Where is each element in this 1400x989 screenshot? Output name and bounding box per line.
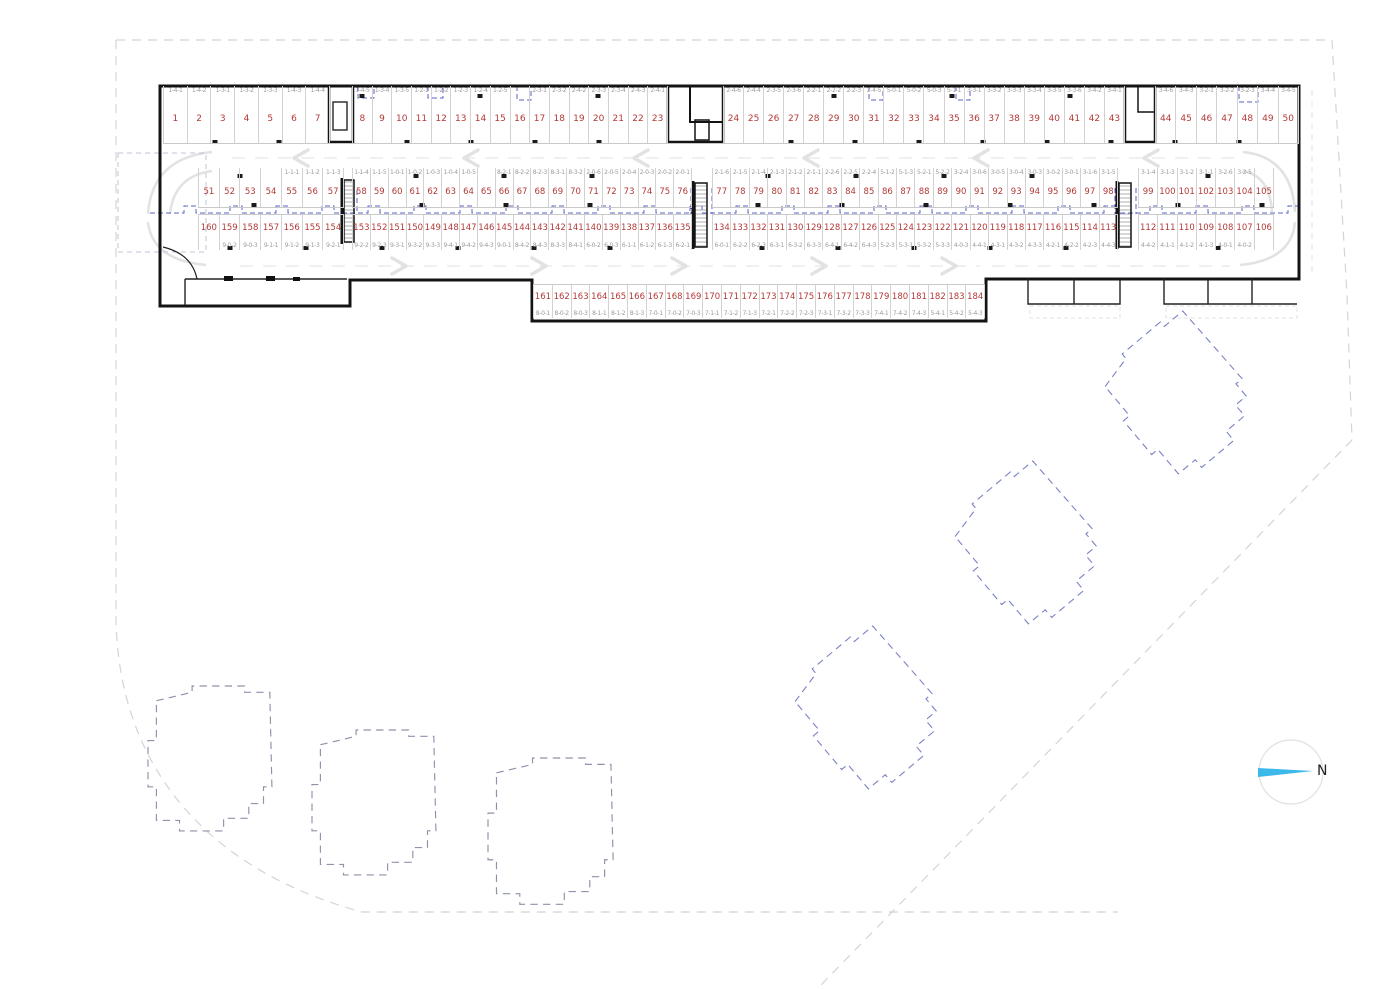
space-label: 8-0-3 [573, 309, 587, 318]
space-label: 2-1-5 [733, 168, 747, 177]
space-number: 20 [593, 114, 604, 124]
space-number: 76 [677, 187, 688, 197]
space-label: 6-1-1 [622, 241, 636, 250]
parking-space: 1797-4-1 [872, 285, 891, 318]
space-number: 39 [1029, 114, 1040, 124]
parking-space: 2-2-229 [824, 86, 844, 143]
parking-space: 3-0-493 [1008, 168, 1026, 207]
space-number: 107 [1236, 223, 1252, 233]
parking-space: 3-2-6103 [1216, 168, 1235, 207]
space-number: 13 [455, 114, 466, 124]
space-label: 3-1-6 [1083, 168, 1097, 177]
parking-space: 1326-2-3 [750, 215, 768, 250]
space-number: 31 [868, 114, 879, 124]
parking-space: 1316-3-1 [768, 215, 786, 250]
space-number: 69 [552, 187, 563, 197]
space-label: 6-3-2 [788, 241, 802, 250]
parking-space: 3-4-345 [1176, 86, 1196, 143]
parking-space: 3-0-196 [1063, 168, 1081, 207]
space-label: 8-4-1 [568, 241, 582, 250]
space-number: 56 [307, 187, 318, 197]
space-number: 131 [769, 223, 785, 233]
parking-space: 1549-2-1 [323, 215, 344, 250]
space-number: 14 [475, 114, 486, 124]
parking-space: 1-0-160 [389, 168, 407, 207]
space-number: 166 [629, 292, 645, 302]
space-number: 3 [220, 114, 226, 124]
space-label: 6-2-3 [751, 241, 765, 250]
parking-space: 3-3-237 [985, 86, 1005, 143]
space-number: 88 [919, 187, 930, 197]
space-number: 63 [445, 187, 456, 197]
space-number: 137 [639, 223, 655, 233]
space-number: 5 [267, 114, 273, 124]
parking-space: 3-1-598 [1100, 168, 1118, 207]
space-number: 19 [573, 114, 584, 124]
space-number: 117 [1026, 223, 1042, 233]
parking-space: 3-4-550 [1279, 86, 1299, 143]
space-label: 5-2-2 [935, 168, 949, 177]
parking-space: 1-1-357 [323, 168, 344, 207]
parking-space: 5-1-387 [897, 168, 915, 207]
space-number: 101 [1179, 187, 1195, 197]
space-label: 1-3-1 [216, 86, 230, 95]
space-number: 142 [550, 223, 566, 233]
space-label: 2-4-5 [867, 86, 881, 95]
space-number: 53 [245, 187, 256, 197]
parking-space: 1559-1-3 [303, 215, 324, 250]
parking-space: 53 [240, 168, 261, 207]
parking-space: 1489-4-1 [442, 215, 460, 250]
space-number: 148 [443, 223, 459, 233]
space-label: 7-3-2 [837, 309, 851, 318]
space-number: 72 [606, 187, 617, 197]
parking-space: 2-3-320 [589, 86, 609, 143]
space-label: 3-0-5 [991, 168, 1005, 177]
parking-space: 16 [511, 86, 531, 143]
parking-space: 1366-1-3 [656, 215, 674, 250]
parking-space: 2-2-485 [860, 168, 878, 207]
parking-space: 1-1-256 [303, 168, 324, 207]
space-label: 6-1-3 [658, 241, 672, 250]
space-number: 147 [460, 223, 476, 233]
space-number: 182 [930, 292, 946, 302]
space-label: 7-3-1 [818, 309, 832, 318]
space-number: 68 [534, 187, 545, 197]
space-number: 18 [553, 114, 564, 124]
parking-space: 1519-3-1 [389, 215, 407, 250]
space-number: 89 [937, 187, 948, 197]
space-number: 174 [779, 292, 795, 302]
space-number: 38 [1008, 114, 1019, 124]
space-label: 1-4-2 [192, 86, 206, 95]
space-number: 92 [992, 187, 1003, 197]
space-label: 3-3-1 [967, 86, 981, 95]
parking-space: 1697-0-3 [684, 285, 703, 318]
site-plan-canvas: 1-4-111-4-221-3-131-3-241-3-351-4-361-4-… [0, 0, 1400, 989]
space-number: 96 [1066, 187, 1077, 197]
parking-space: 3-2-348 [1238, 86, 1258, 143]
space-label: 1-3-4 [375, 86, 389, 95]
space-number: 159 [221, 223, 237, 233]
space-number: 146 [478, 223, 494, 233]
parking-space: 1707-1-1 [703, 285, 722, 318]
space-label: 9-0-1 [497, 241, 511, 250]
space-label: 4-3-3 [1027, 241, 1041, 250]
parking-space: 1418-4-1 [567, 215, 585, 250]
space-label: 2-0-5 [604, 168, 618, 177]
space-number: 64 [463, 187, 474, 197]
space-label: 1-2-5 [493, 86, 507, 95]
parking-space: 1817-4-3 [910, 285, 929, 318]
space-number: 181 [911, 292, 927, 302]
parking-space: 3-0-592 [989, 168, 1007, 207]
parking-space: 1727-1-3 [741, 285, 760, 318]
space-label: 6-4-2 [843, 241, 857, 250]
space-number: 128 [824, 223, 840, 233]
space-number: 164 [591, 292, 607, 302]
space-number: 6 [291, 114, 297, 124]
space-number: 104 [1236, 187, 1252, 197]
parking-space: 3-2-490 [952, 168, 970, 207]
space-label: 2-0-1 [675, 168, 689, 177]
space-number: 22 [632, 114, 643, 124]
space-label: 8-1-1 [592, 309, 606, 318]
space-number: 111 [1159, 223, 1175, 233]
space-label: 3-1-3 [1160, 168, 1174, 177]
parking-space: 3-1-697 [1081, 168, 1099, 207]
parking-space: 1539-2-2 [352, 215, 371, 250]
space-number: 10 [396, 114, 407, 124]
parking-space: 2-1-182 [805, 168, 823, 207]
space-label: 3-4-4 [1261, 86, 1275, 95]
space-label: 5-3-1 [899, 241, 913, 250]
space-number: 40 [1049, 114, 1060, 124]
space-number: 23 [652, 114, 663, 124]
parking-space: 3-0-691 [971, 168, 989, 207]
space-label: 2-3-1 [532, 86, 546, 95]
parking-space: 1628-0-2 [553, 285, 572, 318]
space-number: 171 [723, 292, 739, 302]
parking-space: 1589-0-3 [240, 215, 261, 250]
space-number: 173 [760, 292, 776, 302]
parking-space: 1747-2-2 [778, 285, 797, 318]
parking-space: 1-3-13 [211, 86, 235, 143]
parking-space: 3-1-1102 [1197, 168, 1216, 207]
space-number: 79 [753, 187, 764, 197]
space-label: 4-1-1 [1160, 241, 1174, 250]
space-number: 100 [1159, 187, 1175, 197]
space-number: 121 [953, 223, 969, 233]
space-label: 9-1-1 [264, 241, 278, 250]
space-label: 6-4-3 [862, 241, 876, 250]
space-label: 2-1-2 [788, 168, 802, 177]
space-number: 48 [1242, 114, 1253, 124]
parking-space: 160 [198, 215, 220, 250]
space-number: 84 [845, 187, 856, 197]
parking-space: 1677-0-1 [647, 285, 666, 318]
space-label: 3-3-2 [987, 86, 1001, 95]
parking-space: 1-0-564 [460, 168, 478, 207]
space-number: 150 [407, 223, 423, 233]
parking-space: 1164-2-1 [1044, 215, 1062, 250]
parking-space: 1235-3-2 [915, 215, 933, 250]
parking-space: 2-0-671 [585, 168, 603, 207]
space-number: 169 [685, 292, 701, 302]
space-label: 2-4-6 [726, 86, 740, 95]
space-number: 149 [425, 223, 441, 233]
parking-space: 1296-3-3 [805, 215, 823, 250]
parking-space: 1569-1-2 [282, 215, 303, 250]
parking-space: 3-3-641 [1065, 86, 1085, 143]
space-number: 71 [588, 187, 599, 197]
space-number: 176 [817, 292, 833, 302]
parking-space: 1-3-35 [259, 86, 283, 143]
space-label: 8-2-3 [533, 168, 547, 177]
space-label: 7-1-1 [705, 309, 719, 318]
space-number: 42 [1089, 114, 1100, 124]
parking-space: 1599-0-2 [220, 215, 241, 250]
space-label: 4-2-3 [1083, 241, 1097, 250]
space-label: 2-1-4 [751, 168, 765, 177]
space-number: 168 [666, 292, 682, 302]
parking-space: 1134-4-3 [1100, 215, 1118, 250]
space-number: 43 [1109, 114, 1120, 124]
parking-space: 2-3-627 [784, 86, 804, 143]
space-label: 9-1-2 [285, 241, 299, 250]
space-label: 9-2-3 [372, 241, 386, 250]
parking-space: 1668-1-3 [628, 285, 647, 318]
space-number: 163 [572, 292, 588, 302]
space-label: 9-0-3 [243, 241, 257, 250]
parking-space: 1194-3-1 [989, 215, 1007, 250]
parking-space: 1-2-212 [432, 86, 452, 143]
space-label: 2-0-2 [658, 168, 672, 177]
parking-space: 1428-3-3 [549, 215, 567, 250]
space-label: 7-0-3 [686, 309, 700, 318]
parking-space: 3-4-644 [1155, 86, 1176, 143]
space-number: 93 [1011, 187, 1022, 197]
parking-space: 52 [220, 168, 241, 207]
space-number: 156 [284, 223, 300, 233]
parking-space: 8-3-169 [549, 168, 567, 207]
parking-space: 1286-4-1 [823, 215, 841, 250]
parking-space: 1-4-58 [352, 86, 373, 143]
space-label: 1-3-5 [395, 86, 409, 95]
parking-space: 2-3-218 [550, 86, 570, 143]
space-number: 83 [827, 187, 838, 197]
space-label: 3-4-2 [1087, 86, 1101, 95]
parking-space: 5-2-289 [934, 168, 952, 207]
space-number: 167 [648, 292, 664, 302]
space-number: 9 [379, 114, 385, 124]
space-label: 3-0-4 [1009, 168, 1023, 177]
space-label: 4-0-1 [1218, 241, 1232, 250]
space-number: 36 [968, 114, 979, 124]
space-number: 61 [410, 187, 421, 197]
space-number: 178 [854, 292, 870, 302]
space-label: 5-4-3 [968, 309, 982, 318]
parking-space: 1845-4-3 [966, 285, 985, 318]
space-number: 116 [1045, 223, 1061, 233]
space-number: 179 [873, 292, 889, 302]
parking-space: 2-4-531 [864, 86, 884, 143]
space-label: 5-4-2 [949, 309, 963, 318]
space-label: 3-0-1 [1064, 168, 1078, 177]
space-number: 51 [203, 187, 214, 197]
space-label: 6-3-3 [807, 241, 821, 250]
space-number: 126 [861, 223, 877, 233]
space-label: 2-4-2 [572, 86, 586, 95]
space-label: 3-2-6 [1218, 168, 1232, 177]
parking-space: 3-0-295 [1044, 168, 1062, 207]
parking-space: 1124-4-2 [1138, 215, 1158, 250]
space-number: 158 [242, 223, 258, 233]
space-label: 1-0-4 [443, 168, 457, 177]
space-number: 143 [532, 223, 548, 233]
parking-space: 1509-3-2 [407, 215, 425, 250]
space-label: 2-3-4 [611, 86, 625, 95]
space-number: 160 [201, 223, 217, 233]
space-number: 17 [534, 114, 545, 124]
parking-space: 1356-2-1 [674, 215, 692, 250]
space-label: 8-3-2 [568, 168, 582, 177]
space-label: 1-4-4 [311, 86, 325, 95]
parking-space: 3-0-394 [1026, 168, 1044, 207]
space-label: 8-3-3 [551, 241, 565, 250]
space-number: 135 [674, 223, 690, 233]
space-number: 49 [1262, 114, 1273, 124]
space-label: 1-3-2 [239, 86, 253, 95]
space-label: 1-2-3 [454, 86, 468, 95]
parking-space: 1406-0-2 [585, 215, 603, 250]
space-number: 67 [517, 187, 528, 197]
space-label: 3-3-6 [1067, 86, 1081, 95]
space-number: 130 [787, 223, 803, 233]
space-number: 81 [790, 187, 801, 197]
space-label: 9-4-3 [479, 241, 493, 250]
space-label: 9-4-2 [461, 241, 475, 250]
space-label: 3-2-5 [1237, 168, 1251, 177]
parking-space: 3-3-338 [1005, 86, 1025, 143]
space-number: 66 [499, 187, 510, 197]
parking-space: 1618-0-1 [533, 285, 553, 318]
parking-space: 2-3-526 [764, 86, 784, 143]
space-label: 6-4-1 [825, 241, 839, 250]
space-number: 125 [879, 223, 895, 233]
space-number: 91 [974, 187, 985, 197]
space-number: 57 [328, 187, 339, 197]
parking-space: 3-2-247 [1217, 86, 1237, 143]
parking-segment: 1-4-111-4-221-3-131-3-241-3-351-4-361-4-… [163, 86, 330, 144]
space-label: 3-2-3 [1240, 86, 1254, 95]
parking-space: 2-0-374 [639, 168, 657, 207]
space-label: 1-2-1 [414, 86, 428, 95]
space-label: 8-1-3 [630, 309, 644, 318]
space-number: 129 [806, 223, 822, 233]
space-label: 5-4-1 [930, 309, 944, 318]
parking-space: 1336-2-2 [731, 215, 749, 250]
space-number: 136 [657, 223, 673, 233]
space-label: 8-4-2 [515, 241, 529, 250]
space-number: 103 [1217, 187, 1233, 197]
space-number: 157 [263, 223, 279, 233]
space-number: 119 [990, 223, 1006, 233]
parking-space: 1-0-261 [407, 168, 425, 207]
space-number: 85 [864, 187, 875, 197]
space-number: 120 [971, 223, 987, 233]
space-number: 115 [1063, 223, 1079, 233]
parking-space: 1438-4-3 [531, 215, 549, 250]
parking-space: 1245-3-1 [897, 215, 915, 250]
space-number: 70 [570, 187, 581, 197]
space-label: 3-4-3 [1179, 86, 1193, 95]
space-number: 106 [1256, 223, 1272, 233]
parking-space: 1638-0-3 [572, 285, 591, 318]
parking-space: 2-1-380 [768, 168, 786, 207]
parking-space: 5-0-132 [884, 86, 904, 143]
space-number: 113 [1100, 223, 1116, 233]
space-number: 50 [1283, 114, 1294, 124]
parking-space: 1346-0-1 [712, 215, 731, 250]
parking-space: 2-4-624 [723, 86, 744, 143]
space-label: 2-3-3 [591, 86, 605, 95]
parking-space: 2-0-176 [674, 168, 692, 207]
parking-space: 3-1-499 [1138, 168, 1158, 207]
space-number: 8 [359, 114, 365, 124]
space-label: 7-2-2 [780, 309, 794, 318]
space-number: 133 [732, 223, 748, 233]
parking-segment: 1601599-0-21589-0-31579-1-11569-1-21559-… [198, 214, 344, 250]
parking-space: 2-1-578 [731, 168, 749, 207]
space-number: 55 [286, 187, 297, 197]
space-number: 34 [928, 114, 939, 124]
space-label: 2-0-3 [640, 168, 654, 177]
space-label: 2-1-3 [770, 168, 784, 177]
parking-space: 1-4-36 [283, 86, 307, 143]
space-label: 8-3-1 [551, 168, 565, 177]
parking-space: 1-1-559 [371, 168, 389, 207]
space-label: 8-2-1 [497, 168, 511, 177]
parking-space: 1757-2-3 [797, 285, 816, 318]
space-label: 9-3-1 [390, 241, 404, 250]
space-number: 73 [624, 187, 635, 197]
space-number: 30 [848, 114, 859, 124]
space-number: 114 [1082, 223, 1098, 233]
parking-space: 1255-2-3 [879, 215, 897, 250]
parking-space: 1-4-11 [163, 86, 188, 143]
space-number: 29 [828, 114, 839, 124]
space-number: 2 [196, 114, 202, 124]
space-label: 3-2-4 [954, 168, 968, 177]
space-label: 3-3-4 [1027, 86, 1041, 95]
parking-space: 3-1-2101 [1178, 168, 1197, 207]
space-label: 5-0-2 [907, 86, 921, 95]
space-label: 3-1-2 [1180, 168, 1194, 177]
parking-space: 1579-1-1 [261, 215, 282, 250]
space-number: 33 [908, 114, 919, 124]
space-number: 175 [798, 292, 814, 302]
parking-space: 1-3-49 [373, 86, 393, 143]
parking-space: 8-2-267 [514, 168, 532, 207]
space-label: 9-0-2 [222, 241, 236, 250]
space-label: 2-2-3 [847, 86, 861, 95]
parking-space: 8-2-166 [496, 168, 514, 207]
space-number: 99 [1143, 187, 1154, 197]
space-label: 4-4-2 [1141, 241, 1155, 250]
space-number: 46 [1201, 114, 1212, 124]
space-label: 5-1-3 [899, 168, 913, 177]
